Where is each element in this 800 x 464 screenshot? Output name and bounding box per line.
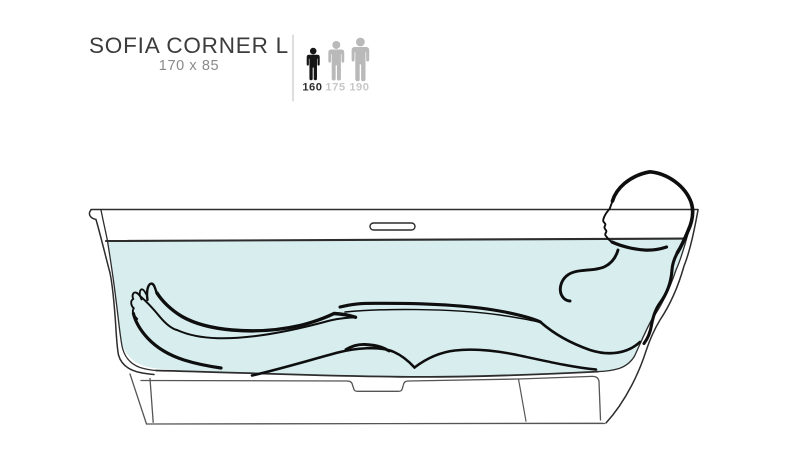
svg-text:175: 175 — [325, 82, 345, 94]
svg-text:160: 160 — [302, 82, 322, 94]
svg-text:190: 190 — [349, 82, 369, 94]
